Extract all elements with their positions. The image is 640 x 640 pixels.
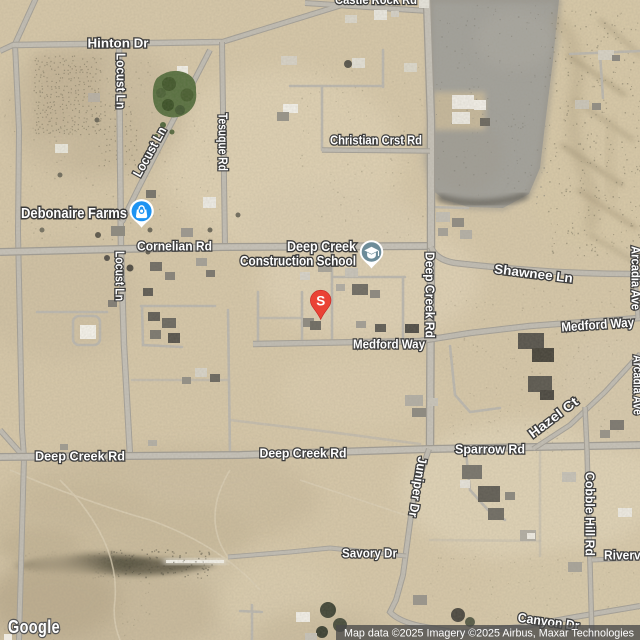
svg-text:Tesuque Rd: Tesuque Rd [216,113,231,171]
svg-text:Cornelian Rd: Cornelian Rd [137,239,212,254]
svg-text:Google: Google [8,617,60,637]
svg-text:Deep Creek Rd: Deep Creek Rd [35,449,125,464]
svg-text:Sparrow Rd: Sparrow Rd [455,442,525,457]
svg-text:Christian Crst Rd: Christian Crst Rd [330,133,422,148]
svg-text:S: S [316,293,325,308]
svg-text:Deep Creek Rd: Deep Creek Rd [260,446,347,461]
svg-text:Debonaire Farms: Debonaire Farms [21,205,127,222]
svg-text:Locust Ln: Locust Ln [114,53,129,109]
svg-text:Cobble Hill Rd: Cobble Hill Rd [583,472,598,556]
svg-text:Savory Dr: Savory Dr [342,546,397,561]
svg-text:Arcadia Ave: Arcadia Ave [631,355,640,415]
svg-text:Riverview: Riverview [604,548,640,563]
svg-text:Deep Creek Rd: Deep Creek Rd [423,252,438,338]
svg-text:Map data ©2025 Imagery ©2025 A: Map data ©2025 Imagery ©2025 Airbus, Max… [344,628,634,640]
svg-text:Locust Ln: Locust Ln [113,251,128,301]
svg-text:Hinton Dr: Hinton Dr [88,36,149,51]
svg-text:Castle Rock Rd: Castle Rock Rd [335,0,417,7]
svg-text:Arcadia Ave: Arcadia Ave [629,246,640,310]
svg-text:Construction School: Construction School [240,253,356,269]
svg-text:Medford Way: Medford Way [353,337,426,352]
